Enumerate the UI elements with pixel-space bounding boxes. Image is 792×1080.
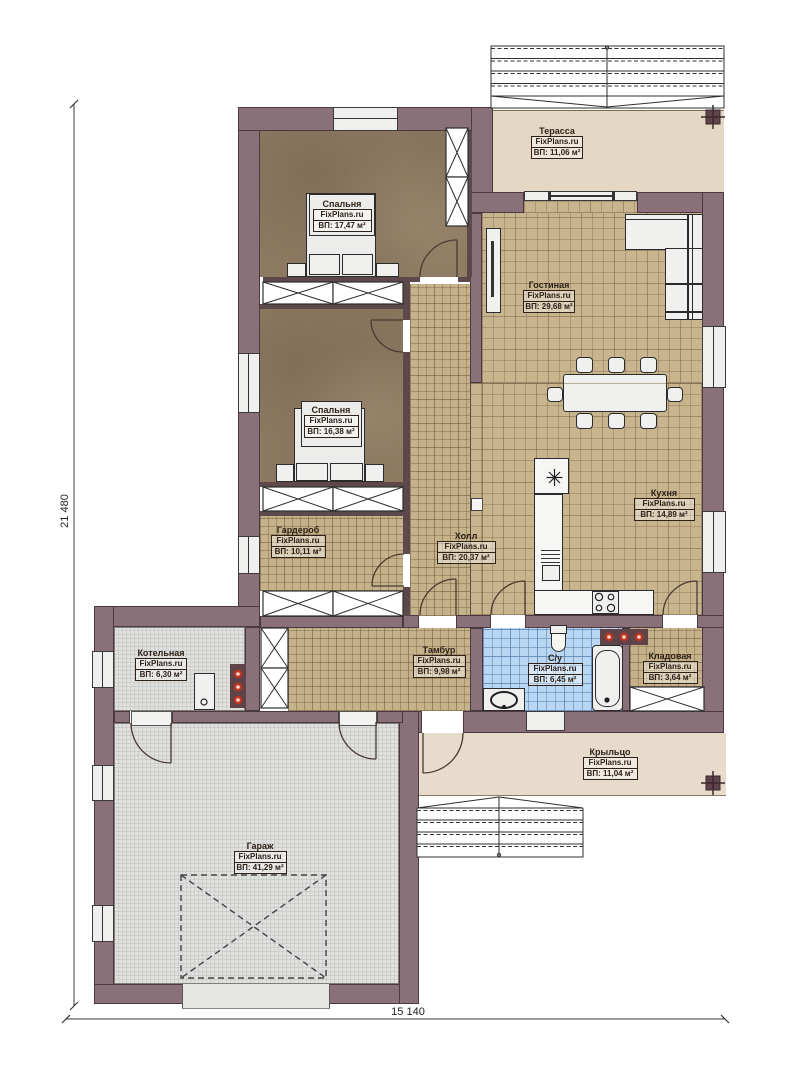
svg-text:21 480: 21 480 — [59, 494, 71, 528]
svg-text:15 140: 15 140 — [391, 1006, 425, 1018]
